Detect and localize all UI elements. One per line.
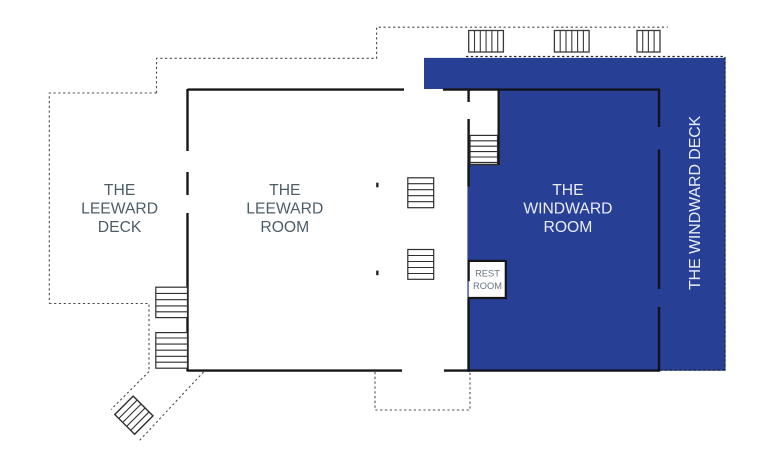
svg-text:REST: REST bbox=[475, 268, 500, 278]
svg-text:THE WINDWARD DECK: THE WINDWARD DECK bbox=[687, 115, 704, 290]
svg-text:ROOM: ROOM bbox=[473, 281, 502, 291]
svg-text:THE: THE bbox=[269, 182, 300, 199]
svg-text:LEEWARD: LEEWARD bbox=[81, 200, 158, 217]
svg-text:WINDWARD: WINDWARD bbox=[523, 200, 612, 217]
svg-text:ROOM: ROOM bbox=[543, 219, 592, 236]
svg-text:THE: THE bbox=[104, 182, 135, 199]
svg-text:ROOM: ROOM bbox=[260, 219, 309, 236]
svg-text:THE: THE bbox=[552, 182, 583, 199]
svg-text:LEEWARD: LEEWARD bbox=[246, 200, 323, 217]
svg-text:DECK: DECK bbox=[98, 219, 142, 236]
